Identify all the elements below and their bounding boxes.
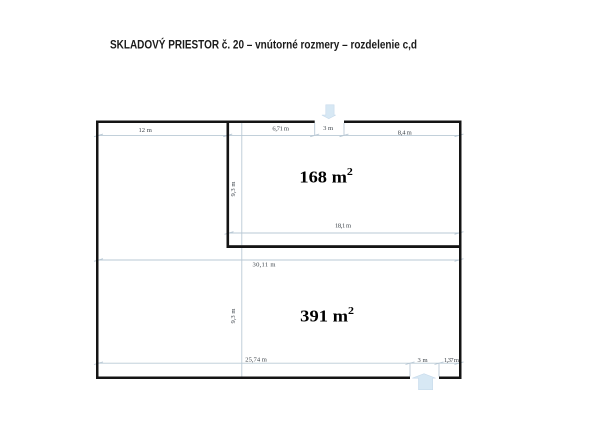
svg-text:6,71 m: 6,71 m	[272, 126, 289, 133]
svg-text:SKLADOVÝ PRIESTOR č. 20 – vnút: SKLADOVÝ PRIESTOR č. 20 – vnútorné rozme…	[110, 37, 417, 52]
svg-text:12 m: 12 m	[139, 127, 153, 134]
svg-text:168 m2: 168 m2	[299, 166, 353, 187]
svg-text:3 m: 3 m	[323, 125, 334, 132]
svg-text:3 m: 3 m	[418, 357, 429, 364]
svg-text:18,1 m: 18,1 m	[335, 222, 352, 229]
svg-text:9,3 m: 9,3 m	[230, 181, 237, 197]
svg-text:8,4 m: 8,4 m	[398, 130, 413, 137]
svg-text:25,74 m: 25,74 m	[245, 356, 267, 363]
svg-text:1,37 m: 1,37 m	[444, 357, 460, 364]
svg-text:9,3 m: 9,3 m	[230, 308, 237, 324]
svg-text:391 m2: 391 m2	[300, 305, 354, 326]
svg-text:30,11 m: 30,11 m	[253, 262, 277, 269]
